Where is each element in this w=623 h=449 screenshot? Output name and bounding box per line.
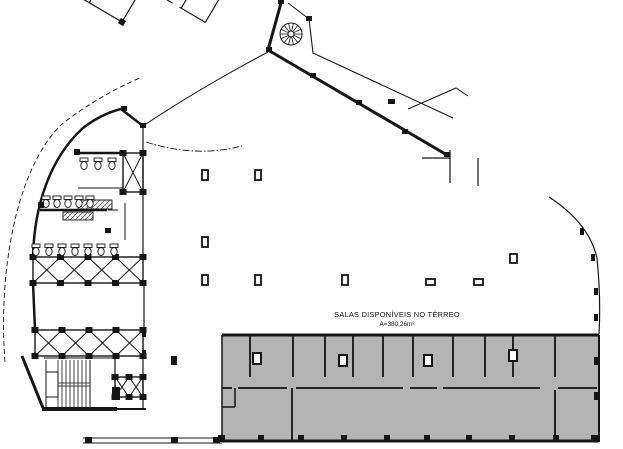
truss-column — [140, 189, 147, 195]
truss-column — [112, 374, 119, 380]
washbasin-counter — [63, 212, 93, 220]
column-marker — [121, 106, 127, 111]
column-marker — [298, 435, 304, 442]
spiral-stair-icon — [280, 23, 302, 45]
truss-column — [140, 394, 147, 400]
spiral-stair-core — [288, 31, 294, 37]
toilet-tank — [71, 244, 79, 248]
toilet-tank — [58, 244, 66, 248]
toilet-bowl — [85, 248, 91, 256]
column-marker — [341, 435, 347, 442]
column-marker — [140, 123, 146, 128]
available-rooms-area: A=380,26m² — [380, 321, 415, 328]
spiral-stair-tread — [289, 37, 291, 45]
building-boundary — [4, 3, 600, 362]
toilet-bowl — [54, 200, 60, 208]
truss-column — [86, 327, 93, 333]
toilet-bowl — [81, 162, 87, 170]
wall-segment — [22, 356, 43, 408]
toilet-tank — [45, 244, 53, 248]
column-marker — [388, 99, 395, 104]
toilet-tank — [80, 158, 88, 162]
column-marker — [171, 437, 178, 443]
column-marker-open — [424, 355, 432, 366]
column-marker — [105, 228, 111, 233]
column-marker — [142, 331, 146, 337]
toilet-bowl — [111, 248, 117, 256]
office-wall — [154, 0, 173, 3]
column-marker — [112, 387, 120, 400]
washbasin-counter — [78, 200, 112, 209]
column-marker — [594, 357, 599, 365]
facade-top-outline — [288, 3, 453, 118]
toilet-tank — [64, 196, 72, 200]
available-rooms-title: SALAS DISPONÍVEIS NO TÉRREO — [334, 310, 460, 319]
truss-column — [57, 280, 64, 286]
truss-column — [112, 280, 119, 286]
column-marker — [258, 435, 264, 442]
truss-column — [120, 189, 127, 195]
facade-arc-left-thin — [143, 52, 268, 126]
truss-column — [59, 327, 66, 333]
truss-column — [85, 280, 92, 286]
truss-column — [126, 394, 133, 400]
column-marker — [38, 202, 44, 208]
column-marker — [580, 228, 584, 235]
column-marker — [402, 129, 408, 134]
roof-peak-outline — [408, 88, 468, 109]
office-wall — [180, 7, 206, 22]
truss-column — [30, 280, 37, 286]
column-marker — [466, 435, 472, 442]
column-marker — [594, 288, 598, 295]
spiral-stair-tread — [289, 23, 291, 31]
stair-landing — [46, 372, 58, 397]
truss-column — [113, 353, 120, 359]
column-marker — [384, 435, 390, 442]
column-marker — [142, 350, 146, 356]
truss-column — [120, 150, 127, 156]
toilet-tank — [86, 196, 94, 200]
available-rooms-zone — [222, 335, 599, 442]
toilet-bowl — [95, 162, 101, 170]
column-marker — [218, 435, 225, 442]
toilet-bowl — [87, 200, 93, 208]
column-marker — [594, 314, 598, 321]
truss-column — [32, 327, 39, 333]
truss-column — [140, 254, 147, 260]
truss-column — [32, 353, 39, 359]
truss-column — [126, 374, 133, 380]
wall-segment — [268, 3, 281, 50]
column-marker-open — [255, 170, 261, 180]
column-marker — [266, 47, 272, 52]
column-marker-open — [202, 275, 208, 285]
toilet-tank — [42, 196, 50, 200]
column-marker-open — [202, 170, 208, 180]
truss-column — [59, 353, 66, 359]
column-marker-open — [339, 355, 347, 366]
toilet-tank — [84, 244, 92, 248]
floor-plan-canvas: SALAS DISPONÍVEIS NO TÉRREO A=380,26m² — [0, 0, 623, 449]
column-marker-open — [255, 275, 261, 285]
column-marker — [509, 435, 515, 442]
toilet-bowl — [76, 200, 82, 208]
column-marker — [74, 149, 80, 155]
toilet-tank — [75, 196, 83, 200]
column-marker — [356, 100, 362, 105]
truss-column — [113, 327, 120, 333]
column-marker — [444, 152, 450, 157]
canopy-dashdot-line — [146, 142, 242, 151]
truss-frame — [33, 257, 143, 283]
toilet-tank — [97, 244, 105, 248]
column-marker-open — [509, 350, 517, 361]
truss-column — [140, 374, 147, 380]
column-marker-open — [342, 275, 348, 285]
toilet-bowl — [72, 248, 78, 256]
toilet-tank — [32, 244, 40, 248]
spiral-stair-tread — [292, 23, 294, 31]
column-marker — [591, 254, 595, 261]
office-wall — [24, 0, 122, 22]
left-stair — [58, 360, 86, 407]
column-marker — [171, 356, 177, 365]
truss-column — [140, 150, 147, 156]
truss-column — [140, 280, 147, 286]
column-marker — [424, 435, 430, 442]
column-marker — [591, 435, 598, 442]
facade-arc-left — [33, 109, 121, 258]
column-marker — [594, 392, 599, 400]
office-wall — [181, 0, 209, 8]
office-wall — [89, 0, 99, 3]
facade-curve-right — [549, 197, 600, 334]
column-marker — [278, 0, 284, 4]
column-marker-open — [510, 254, 517, 263]
floor-plan-page: SALAS DISPONÍVEIS NO TÉRREO A=380,26m² — [0, 0, 623, 449]
column-marker — [85, 437, 92, 443]
column-marker-open — [253, 353, 261, 364]
toilet-bowl — [33, 248, 39, 256]
spiral-stair-tread — [292, 37, 294, 45]
truss-frame — [35, 330, 143, 356]
column-marker — [553, 435, 559, 442]
toilet-bowl — [46, 248, 52, 256]
column-marker-open — [474, 279, 483, 285]
toilet-tank — [94, 158, 102, 162]
toilet-bowl — [109, 162, 115, 170]
column-marker-open — [202, 237, 208, 247]
wall-segment — [33, 283, 35, 330]
column-marker — [306, 16, 312, 21]
toilet-tank — [108, 158, 116, 162]
toilet-tank — [110, 244, 118, 248]
column-marker — [310, 73, 316, 78]
column-marker-open — [426, 279, 435, 285]
toilet-bowl — [98, 248, 104, 256]
wall-junction-column — [118, 18, 126, 26]
office-wall — [122, 0, 143, 22]
wall-segment — [121, 109, 143, 126]
toilet-bowl — [65, 200, 71, 208]
toilet-bowl — [59, 248, 65, 256]
truss-column — [86, 353, 93, 359]
office-wall — [205, 0, 233, 22]
toilet-tank — [53, 196, 61, 200]
angled-office-block — [8, 0, 239, 63]
